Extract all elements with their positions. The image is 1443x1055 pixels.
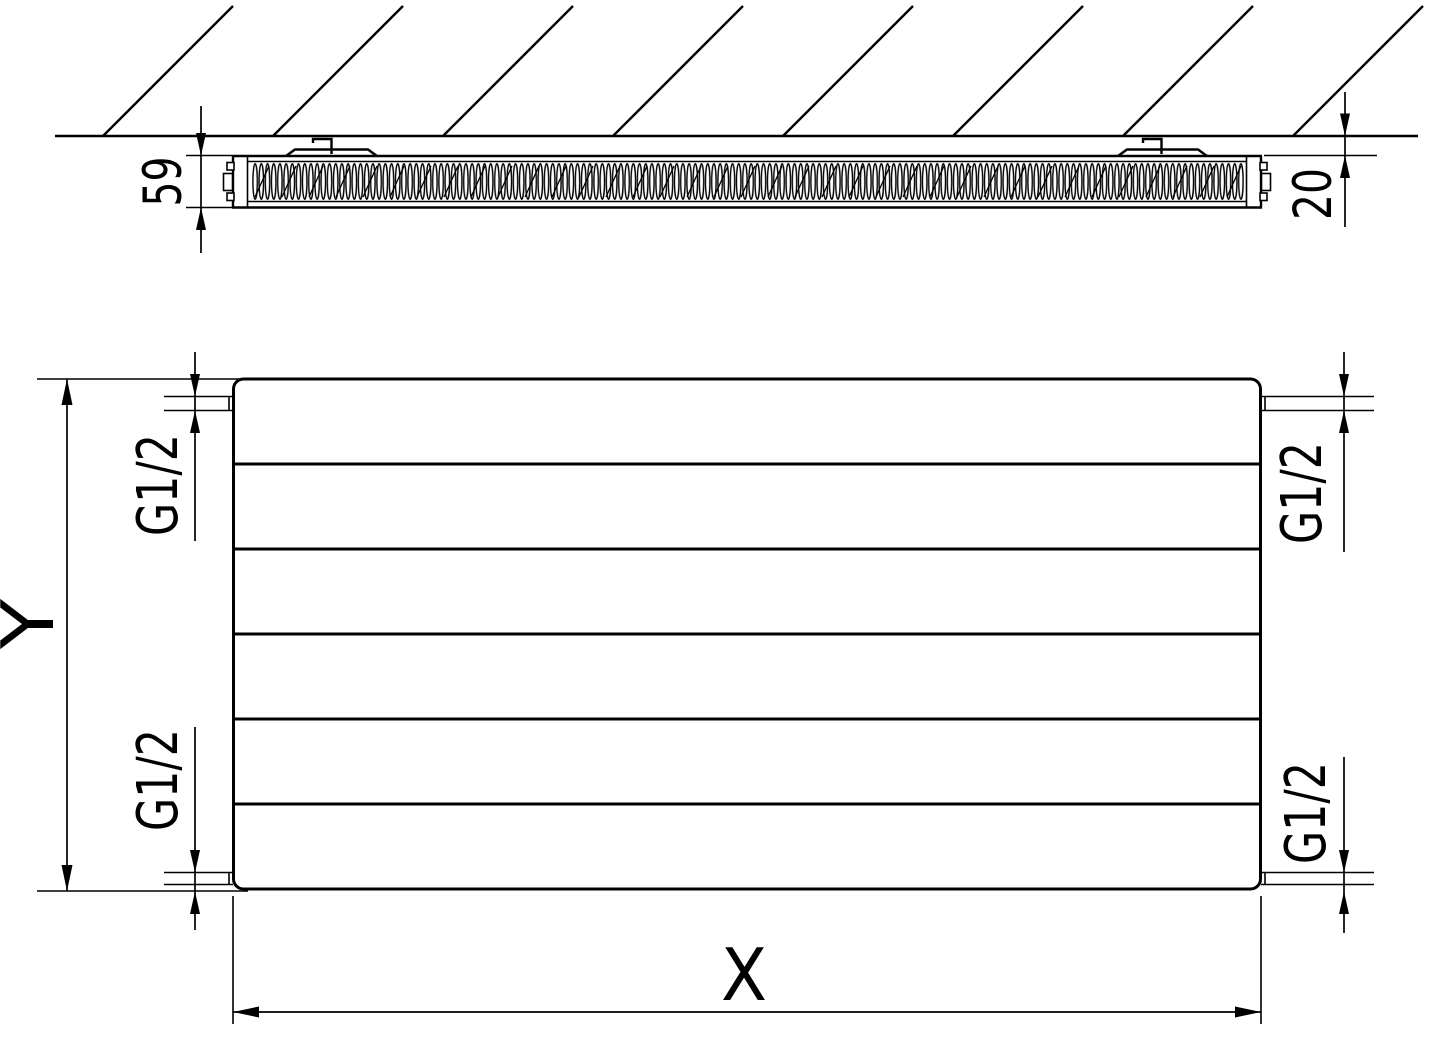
hatch-line xyxy=(783,6,913,136)
arrow-up xyxy=(62,379,73,405)
bracket-wall-hook xyxy=(1143,139,1162,154)
arrow-up xyxy=(1339,892,1349,915)
mounting-bracket-right xyxy=(1118,139,1207,156)
connection-stub-bottom-left xyxy=(164,873,233,885)
dimension-width: X xyxy=(233,896,1261,1024)
hatch-line xyxy=(273,6,403,136)
connection-size: G1/2 xyxy=(126,434,191,536)
port-tab xyxy=(1260,163,1267,171)
hatch-line xyxy=(1123,6,1253,136)
side-seam-tab xyxy=(1262,174,1271,191)
arrow-down xyxy=(62,865,73,891)
hatch-line xyxy=(103,6,233,136)
radiator-front-view xyxy=(164,379,1374,889)
port-tab xyxy=(227,193,234,201)
arrow-down xyxy=(190,374,200,397)
dimension-connection-top-right: G1/2 xyxy=(1270,352,1349,552)
drawing-canvas: 59 20 xyxy=(0,0,1443,1055)
port-tab xyxy=(227,163,234,171)
dimension-connection-top-left: G1/2 xyxy=(126,352,200,541)
radiator-dimension-drawing: 59 20 xyxy=(0,0,1443,1055)
convector-fin-zigzag xyxy=(252,162,1244,201)
hatch-line xyxy=(953,6,1083,136)
arrow-down xyxy=(196,133,206,156)
port-tab xyxy=(1260,193,1267,201)
end-cap-right xyxy=(1247,156,1271,208)
arrow-up xyxy=(196,208,206,231)
width-value: X xyxy=(721,933,767,1017)
dimension-depth: 59 xyxy=(133,106,232,253)
wall-gap-value: 20 xyxy=(1283,168,1344,220)
arrow-left xyxy=(233,1007,259,1018)
mounting-bracket-left xyxy=(286,139,377,156)
bracket-wall-hook xyxy=(313,139,332,154)
connection-size: G1/2 xyxy=(1274,762,1339,864)
connection-stub-top-left xyxy=(164,397,233,411)
height-value: Y xyxy=(0,598,70,650)
connection-size: G1/2 xyxy=(126,729,191,831)
side-seam-tab xyxy=(224,174,233,191)
hatch-line xyxy=(1293,6,1423,136)
arrow-up xyxy=(1339,411,1349,434)
connection-stub-top-right xyxy=(1261,397,1374,411)
depth-value: 59 xyxy=(133,157,194,207)
radiator-side-view xyxy=(224,139,1271,208)
arrow-down xyxy=(1340,114,1350,137)
wall-hatching xyxy=(103,6,1423,136)
dimension-height: Y xyxy=(0,379,248,891)
arrow-up xyxy=(190,892,200,915)
connection-size: G1/2 xyxy=(1270,442,1335,544)
end-cap-left xyxy=(224,156,248,208)
arrow-right xyxy=(1235,1007,1261,1018)
arrow-down xyxy=(1339,374,1349,397)
hatch-line xyxy=(443,6,573,136)
dimension-connection-bottom-left: G1/2 xyxy=(126,727,200,930)
arrow-down xyxy=(1339,850,1349,873)
connection-stub-bottom-right xyxy=(1261,873,1374,885)
dimension-wall-gap: 20 xyxy=(1264,92,1377,227)
dimension-connection-bottom-right: G1/2 xyxy=(1274,757,1349,933)
hatch-line xyxy=(613,6,743,136)
wall-section xyxy=(55,6,1423,136)
arrow-down xyxy=(190,850,200,873)
arrow-up xyxy=(190,411,200,434)
